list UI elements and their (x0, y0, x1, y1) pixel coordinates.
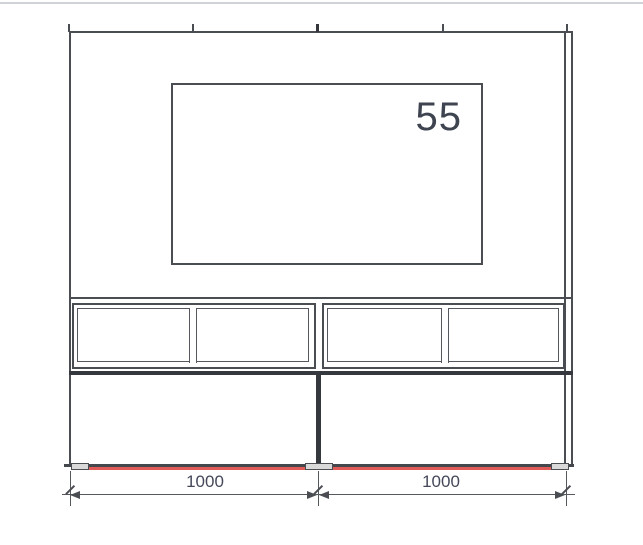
cabinet-right-wall-inner (564, 31, 566, 467)
lower-center-divider (316, 375, 321, 466)
dimension-arrow (70, 491, 80, 499)
dimension-value-left: 1000 (130, 473, 280, 490)
top-tick-mark-center (316, 24, 319, 32)
shelf-bottom-separator (69, 371, 573, 375)
cabinet-right-wall-outer (571, 31, 573, 467)
shelf-divider-right (441, 308, 449, 363)
cabinet-top-edge (69, 31, 573, 33)
dimension-line-right (317, 494, 575, 496)
shelf-divider-left (189, 308, 197, 363)
shelf-top-edge (69, 297, 573, 299)
page-top-divider (0, 2, 643, 4)
dimension-value-right: 1000 (366, 473, 516, 490)
base-connector-center (305, 463, 333, 470)
drawing-canvas[interactable]: 55 1000 1000 (0, 0, 643, 545)
dimension-line-left (62, 494, 319, 496)
tv-size-label: 55 (171, 97, 462, 137)
top-tick-mark (566, 24, 568, 32)
top-tick-mark (442, 24, 444, 32)
top-tick-mark (192, 24, 194, 32)
base-connector-left (71, 463, 89, 470)
cabinet-left-wall (69, 31, 71, 467)
base-connector-right (551, 463, 569, 470)
dimension-arrow (319, 491, 329, 499)
